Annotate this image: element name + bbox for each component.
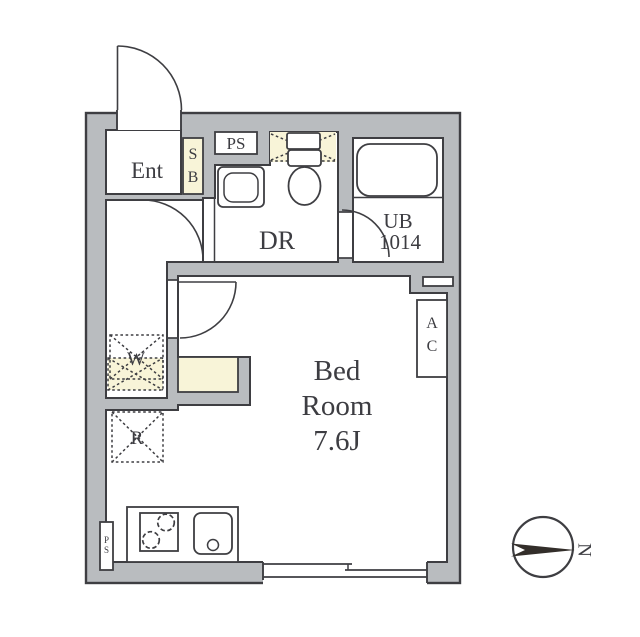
toilet-bowl: [289, 167, 321, 205]
compass: N: [511, 517, 594, 577]
refrigerator-label: R: [131, 428, 144, 449]
unit-bath-size-label: 1014: [379, 230, 422, 254]
kitchen-sink: [194, 513, 232, 554]
bedroom-label-line1: Bed: [314, 355, 361, 387]
bath-door-opening: [339, 212, 352, 258]
pipe-space-upper-label: PS: [227, 134, 246, 153]
toilet-shelf-box: [287, 133, 320, 149]
vent-slot: [423, 277, 453, 286]
shoe-box-label-s: S: [189, 146, 198, 163]
pipe-space-lower-p: P: [104, 535, 109, 545]
bedroom-label-line3: 7.6J: [313, 425, 361, 457]
entrance-label: Ent: [131, 158, 164, 183]
washer-label: W: [127, 349, 145, 370]
floor-plan-page: S B PS W R A C P S: [0, 0, 640, 637]
ac-label-c: C: [427, 338, 438, 355]
floor-plan-drawing: S B PS W R A C P S: [0, 0, 640, 637]
bathtub: [357, 144, 437, 196]
stove-burner: [143, 532, 160, 549]
toilet-tank: [288, 150, 321, 166]
toilet-room-label: DR: [259, 226, 296, 255]
compass-needle: [511, 544, 575, 557]
shoe-box-label-b: B: [188, 169, 199, 186]
stove-burner: [158, 514, 175, 531]
entrance-door-arc: [118, 46, 182, 110]
ac-label-a: A: [426, 315, 438, 332]
pipe-space-lower-s: S: [104, 545, 109, 555]
entrance-opening: [117, 110, 181, 130]
step-block: [178, 357, 238, 392]
bedroom-door-opening: [168, 280, 177, 338]
bedroom-label-line2: Room: [302, 390, 373, 422]
compass-north-label: N: [573, 543, 594, 557]
